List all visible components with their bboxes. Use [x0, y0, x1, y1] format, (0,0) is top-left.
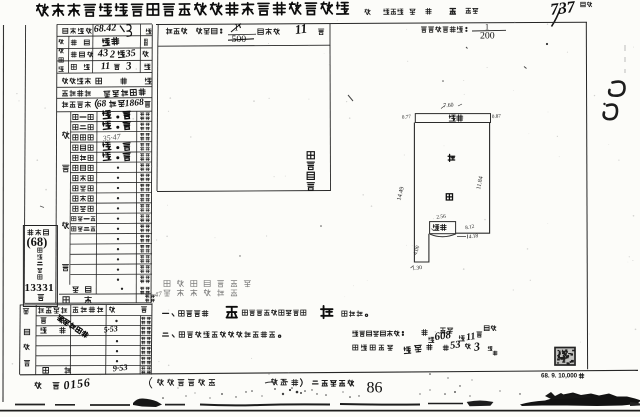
- svg-text:(68): (68): [27, 235, 48, 249]
- svg-text:5·53: 5·53: [103, 324, 118, 334]
- svg-text:11: 11: [294, 21, 308, 38]
- svg-text:68: 68: [96, 99, 107, 110]
- svg-text:43: 43: [96, 48, 108, 60]
- svg-text:14.49: 14.49: [396, 186, 406, 201]
- svg-text:11: 11: [100, 61, 110, 73]
- svg-text:200: 200: [480, 31, 495, 42]
- svg-text:737: 737: [549, 0, 577, 19]
- svg-text:53: 53: [449, 339, 461, 351]
- svg-text:3: 3: [472, 339, 481, 354]
- svg-text:0.77: 0.77: [402, 114, 412, 121]
- svg-text:9·53: 9·53: [112, 362, 129, 374]
- svg-text:13331: 13331: [25, 282, 55, 294]
- svg-text:1.30: 1.30: [412, 265, 423, 272]
- svg-text:86: 86: [367, 380, 383, 397]
- svg-text:2: 2: [109, 49, 115, 60]
- svg-text:0.87: 0.87: [492, 113, 502, 120]
- svg-text:4.18: 4.18: [468, 233, 478, 240]
- svg-text:35·47: 35·47: [144, 290, 163, 300]
- svg-text:2.56: 2.56: [436, 214, 446, 221]
- svg-text:35: 35: [124, 48, 136, 60]
- svg-text:68. 9. 10,000: 68. 9. 10,000: [541, 373, 578, 380]
- svg-text:0156: 0156: [63, 375, 92, 392]
- svg-text:8.12: 8.12: [465, 224, 475, 232]
- svg-text:68.42: 68.42: [93, 22, 116, 35]
- svg-text:11.84: 11.84: [476, 176, 485, 190]
- svg-text:3: 3: [124, 60, 133, 73]
- svg-text:1868: 1868: [124, 98, 144, 110]
